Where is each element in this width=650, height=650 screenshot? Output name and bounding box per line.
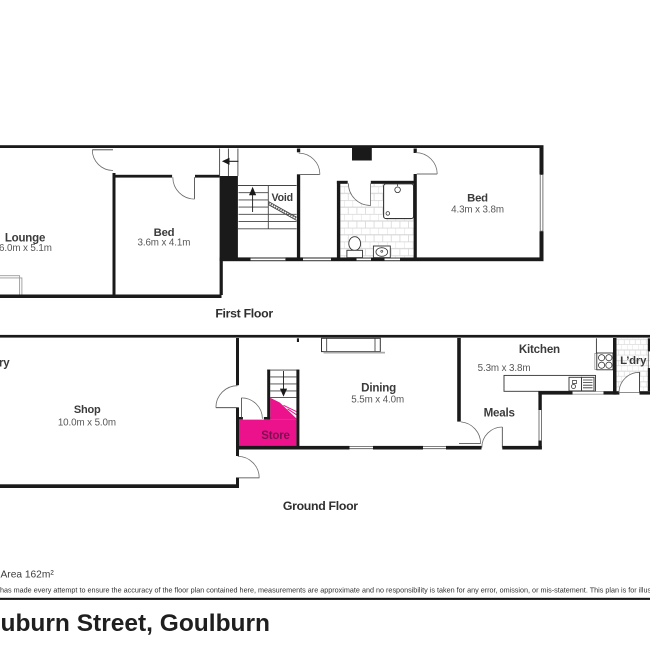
svg-text:Dining: Dining xyxy=(361,381,396,394)
svg-text:4.3m x 3.8m: 4.3m x 3.8m xyxy=(451,205,504,216)
svg-text:Auburn Street, Goulburn: Auburn Street, Goulburn xyxy=(0,610,270,637)
svg-text:Ground Floor: Ground Floor xyxy=(283,499,358,513)
svg-text:Area 162m²: Area 162m² xyxy=(1,569,55,580)
svg-text:Shop: Shop xyxy=(74,404,101,416)
svg-text:3.6m x 4.1m: 3.6m x 4.1m xyxy=(137,237,190,248)
svg-text:Entry: Entry xyxy=(0,357,10,369)
svg-text:Store: Store xyxy=(261,430,289,442)
svg-text:Void: Void xyxy=(272,192,293,204)
svg-text:Bed: Bed xyxy=(467,193,488,205)
svg-text:Meals: Meals xyxy=(484,407,515,420)
svg-text:6.0m x 5.1m: 6.0m x 5.1m xyxy=(0,243,52,254)
svg-text:Kitchen: Kitchen xyxy=(519,343,560,356)
svg-text:First Floor: First Floor xyxy=(215,307,273,321)
svg-text:5.5m x 4.0m: 5.5m x 4.0m xyxy=(351,395,404,406)
svg-text:5.3m x 3.8m: 5.3m x 3.8m xyxy=(478,363,531,374)
svg-text:10.0m x 5.0m: 10.0m x 5.0m xyxy=(58,417,116,428)
svg-text:has made every attempt to ensu: has made every attempt to ensure the acc… xyxy=(0,585,650,594)
svg-text:L’dry: L’dry xyxy=(620,355,647,367)
